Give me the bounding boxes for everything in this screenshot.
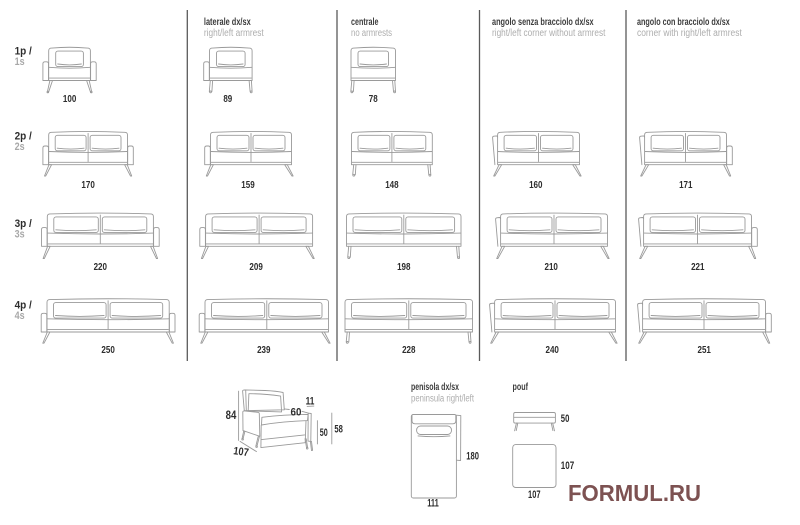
svg-text:11: 11 bbox=[306, 395, 315, 407]
svg-text:198: 198 bbox=[397, 262, 411, 273]
svg-text:239: 239 bbox=[257, 345, 271, 356]
svg-text:240: 240 bbox=[546, 345, 560, 356]
svg-text:228: 228 bbox=[402, 345, 416, 356]
svg-text:250: 250 bbox=[101, 345, 115, 356]
svg-text:78: 78 bbox=[369, 94, 378, 105]
svg-text:4s: 4s bbox=[15, 310, 25, 322]
svg-text:no armrests: no armrests bbox=[351, 28, 392, 39]
svg-text:60: 60 bbox=[291, 407, 302, 419]
svg-text:100: 100 bbox=[63, 94, 77, 105]
svg-text:50: 50 bbox=[561, 413, 570, 425]
svg-text:107: 107 bbox=[233, 445, 250, 459]
svg-text:3s: 3s bbox=[15, 228, 25, 240]
svg-text:84: 84 bbox=[226, 408, 237, 422]
svg-text:221: 221 bbox=[691, 262, 705, 273]
svg-text:111: 111 bbox=[427, 498, 439, 510]
svg-text:159: 159 bbox=[241, 180, 255, 191]
svg-text:corner with right/left armrest: corner with right/left armrest bbox=[637, 28, 742, 39]
svg-text:171: 171 bbox=[679, 180, 693, 191]
svg-text:107: 107 bbox=[561, 460, 574, 472]
svg-text:FORMUL.RU: FORMUL.RU bbox=[568, 480, 701, 506]
svg-text:180: 180 bbox=[466, 451, 479, 463]
svg-text:laterale dx/sx: laterale dx/sx bbox=[204, 17, 251, 28]
svg-text:89: 89 bbox=[223, 94, 232, 105]
svg-text:170: 170 bbox=[81, 180, 95, 191]
svg-text:107: 107 bbox=[528, 489, 541, 501]
svg-text:centrale: centrale bbox=[351, 17, 379, 28]
svg-text:58: 58 bbox=[334, 424, 343, 436]
svg-text:50: 50 bbox=[320, 427, 328, 439]
svg-text:2s: 2s bbox=[15, 141, 25, 153]
svg-text:pouf: pouf bbox=[513, 382, 529, 393]
svg-text:right/left corner without armr: right/left corner without armrest bbox=[492, 28, 606, 39]
svg-text:angolo con bracciolo dx/sx: angolo con bracciolo dx/sx bbox=[637, 17, 730, 28]
svg-text:peninsula right/left: peninsula right/left bbox=[411, 394, 474, 405]
svg-text:angolo senza bracciolo dx/sx: angolo senza bracciolo dx/sx bbox=[492, 17, 594, 28]
svg-text:209: 209 bbox=[249, 262, 263, 273]
svg-text:right/left armrest: right/left armrest bbox=[204, 28, 264, 39]
svg-text:160: 160 bbox=[529, 180, 543, 191]
svg-text:220: 220 bbox=[94, 262, 108, 273]
svg-text:251: 251 bbox=[698, 345, 712, 356]
svg-text:148: 148 bbox=[385, 180, 399, 191]
svg-text:1s: 1s bbox=[15, 56, 25, 68]
svg-text:penisola dx/sx: penisola dx/sx bbox=[411, 382, 459, 393]
svg-text:210: 210 bbox=[545, 262, 559, 273]
